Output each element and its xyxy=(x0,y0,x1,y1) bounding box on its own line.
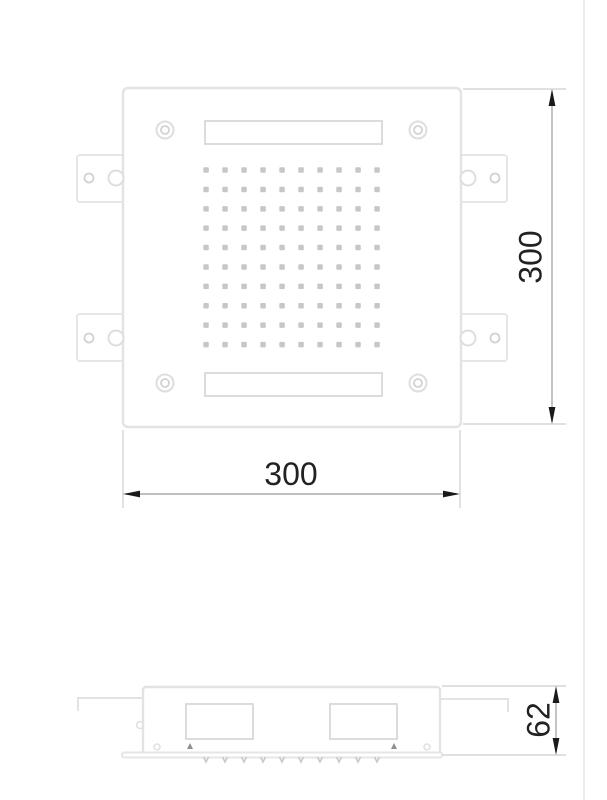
arrow-down-icon xyxy=(549,407,556,424)
spray-nozzle xyxy=(336,284,342,290)
spray-nozzle xyxy=(336,322,342,328)
spray-nozzle xyxy=(317,245,323,251)
spray-nozzle xyxy=(203,167,209,173)
spray-nozzle xyxy=(260,167,266,173)
spray-nozzle xyxy=(317,206,323,212)
spray-nozzle xyxy=(298,322,304,328)
drawing-page: 300 300 xyxy=(0,0,607,800)
arrow-left-icon xyxy=(123,491,140,498)
spray-nozzle xyxy=(336,303,342,309)
spray-nozzle xyxy=(279,167,285,173)
spray-nozzle xyxy=(222,245,228,251)
spray-nozzle xyxy=(260,322,266,328)
spray-nozzle xyxy=(260,284,266,290)
spray-nozzle xyxy=(374,167,380,173)
spray-nozzle xyxy=(203,303,209,309)
screw-hole-bottom-left xyxy=(157,375,174,392)
spray-nozzle xyxy=(374,187,380,193)
screw-hole-top-right xyxy=(410,122,427,139)
spray-nozzle xyxy=(336,225,342,231)
spray-nozzle xyxy=(279,264,285,270)
spray-nozzle xyxy=(336,264,342,270)
spray-nozzle xyxy=(241,245,247,251)
tab-hole-small xyxy=(491,334,500,343)
tab-hole-small xyxy=(85,334,94,343)
spray-nozzle xyxy=(355,245,361,251)
spray-nozzle xyxy=(279,225,285,231)
spray-nozzle xyxy=(298,206,304,212)
spray-nozzle xyxy=(279,322,285,328)
spray-nozzle xyxy=(317,187,323,193)
screw-hole-top-left xyxy=(157,122,174,139)
depth-dimension-label: 62 xyxy=(520,702,556,738)
spray-nozzle xyxy=(260,303,266,309)
spray-nozzle xyxy=(298,264,304,270)
spray-nozzle xyxy=(203,284,209,290)
spray-nozzle xyxy=(374,206,380,212)
depth-dimension: 62 xyxy=(442,686,566,755)
spray-nozzle xyxy=(298,303,304,309)
spray-nozzle xyxy=(298,167,304,173)
spray-nozzle xyxy=(374,342,380,348)
tab-hole-small xyxy=(491,174,500,183)
spray-nozzle xyxy=(336,187,342,193)
spray-nozzle xyxy=(298,187,304,193)
screw-hole-bottom-right xyxy=(410,375,427,392)
spray-nozzle xyxy=(298,284,304,290)
tab-hole-large xyxy=(461,331,476,346)
spray-nozzle xyxy=(260,264,266,270)
spray-nozzle xyxy=(241,187,247,193)
spray-nozzle xyxy=(317,322,323,328)
spray-nozzle xyxy=(260,187,266,193)
spray-nozzle xyxy=(222,167,228,173)
spray-nozzle xyxy=(374,245,380,251)
spray-nozzle xyxy=(355,206,361,212)
spray-nozzle xyxy=(317,284,323,290)
side-slot-left xyxy=(186,704,253,739)
spray-nozzle xyxy=(241,206,247,212)
spray-nozzle xyxy=(317,225,323,231)
spray-nozzle xyxy=(279,342,285,348)
spray-nozzle xyxy=(241,284,247,290)
spray-nozzle xyxy=(336,167,342,173)
spray-nozzle xyxy=(355,284,361,290)
arrow-down-icon xyxy=(553,738,560,755)
spray-nozzle xyxy=(222,264,228,270)
spray-nozzle xyxy=(260,206,266,212)
spray-nozzle xyxy=(374,284,380,290)
spray-nozzle xyxy=(260,225,266,231)
spray-nozzle xyxy=(336,206,342,212)
spray-nozzle xyxy=(355,167,361,173)
spray-nozzle xyxy=(241,322,247,328)
arrow-right-icon xyxy=(443,491,460,498)
spray-nozzle xyxy=(355,322,361,328)
spray-nozzle xyxy=(298,342,304,348)
spray-nozzle xyxy=(241,264,247,270)
height-dimension: 300 xyxy=(463,89,566,424)
spray-nozzle xyxy=(279,303,285,309)
spray-nozzle xyxy=(222,303,228,309)
spray-nozzle xyxy=(279,187,285,193)
mounting-hook-left xyxy=(78,698,143,711)
spray-nozzle xyxy=(222,187,228,193)
spray-nozzle xyxy=(260,342,266,348)
drawing-canvas: 300 300 xyxy=(0,0,607,800)
width-dimension: 300 xyxy=(123,430,460,508)
spray-nozzle xyxy=(374,264,380,270)
spray-nozzle xyxy=(203,322,209,328)
spray-nozzle xyxy=(279,206,285,212)
spray-nozzle xyxy=(355,342,361,348)
spray-nozzle xyxy=(241,167,247,173)
tab-hole-small xyxy=(85,174,94,183)
spray-nozzle xyxy=(241,225,247,231)
spray-nozzle xyxy=(222,342,228,348)
spray-nozzle xyxy=(317,342,323,348)
spray-nozzle xyxy=(317,167,323,173)
side-slot-right xyxy=(330,704,397,739)
arrow-up-icon xyxy=(549,89,556,106)
spray-nozzle xyxy=(298,225,304,231)
spray-nozzle xyxy=(336,245,342,251)
tab-hole-large xyxy=(109,171,124,186)
tab-hole-large xyxy=(109,331,124,346)
arrow-up-icon xyxy=(553,686,560,703)
spray-nozzle xyxy=(203,225,209,231)
spray-nozzle xyxy=(374,322,380,328)
spray-nozzle xyxy=(241,342,247,348)
spray-nozzle xyxy=(241,303,247,309)
spray-nozzle xyxy=(203,245,209,251)
spray-nozzle xyxy=(260,245,266,251)
tab-hole-large xyxy=(461,171,476,186)
spray-nozzle xyxy=(222,225,228,231)
height-dimension-label: 300 xyxy=(512,230,548,283)
side-view xyxy=(78,687,508,762)
width-dimension-label: 300 xyxy=(264,456,317,492)
mounting-hook-right xyxy=(440,699,508,712)
spray-nozzle xyxy=(317,264,323,270)
spray-nozzle xyxy=(374,225,380,231)
spray-nozzle xyxy=(279,245,285,251)
spray-nozzle xyxy=(222,206,228,212)
spray-nozzle xyxy=(374,303,380,309)
plan-view xyxy=(77,88,507,427)
spray-nozzle xyxy=(222,284,228,290)
spray-nozzle xyxy=(222,322,228,328)
spray-nozzle xyxy=(203,264,209,270)
spray-nozzle xyxy=(203,342,209,348)
spray-nozzle xyxy=(355,303,361,309)
spray-nozzle xyxy=(336,342,342,348)
spray-nozzle xyxy=(298,245,304,251)
spray-nozzle xyxy=(203,206,209,212)
spray-nozzle xyxy=(355,264,361,270)
spray-nozzle xyxy=(355,187,361,193)
waterfall-slot-top xyxy=(205,121,382,144)
waterfall-slot-bottom xyxy=(205,373,382,396)
spray-nozzle xyxy=(279,284,285,290)
faceplate-edge xyxy=(122,753,442,758)
spray-nozzle xyxy=(355,225,361,231)
spray-nozzle xyxy=(203,187,209,193)
spray-nozzle xyxy=(317,303,323,309)
